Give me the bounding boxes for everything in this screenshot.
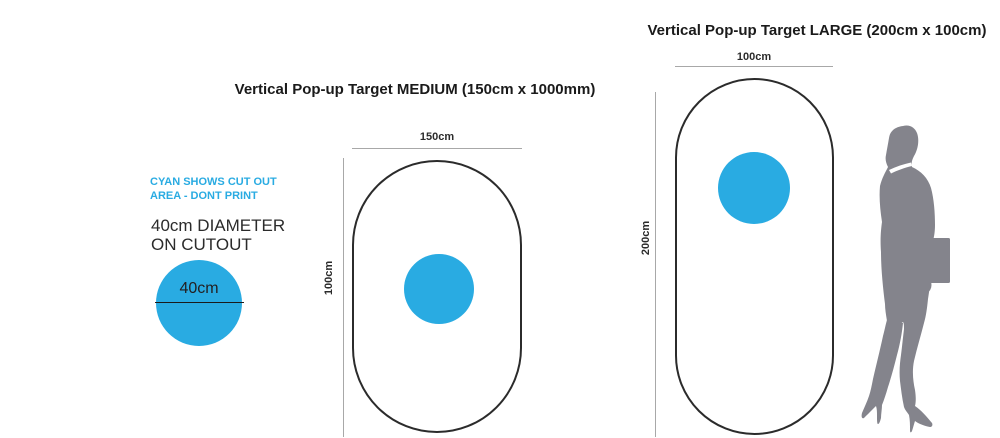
large-height-dim-line [655,92,656,437]
large-width-label: 100cm [704,51,804,63]
large-target-outline [675,78,834,435]
person-silhouette-icon [853,118,965,438]
silhouette-briefcase [927,238,950,283]
cutout-spec: 40cm DIAMETER ON CUTOUT [151,217,285,254]
medium-target-title: Vertical Pop-up Target MEDIUM (150cm x 1… [180,81,650,98]
cutout-spec-line2: ON CUTOUT [151,236,285,255]
silhouette-front-leg [862,317,903,424]
large-width-dim-line [675,66,833,67]
medium-height-label: 100cm [323,248,335,308]
cutout-diameter-line [155,302,244,303]
cutout-note: CYAN SHOWS CUT OUT AREA - DONT PRINT [150,175,277,203]
cutout-note-line1: CYAN SHOWS CUT OUT [150,175,277,189]
large-target-title: Vertical Pop-up Target LARGE (200cm x 10… [647,22,987,39]
silhouette-hand [923,278,932,292]
large-cutout-circle [718,152,790,224]
cutout-sample-circle [156,260,242,346]
diagram-canvas: Vertical Pop-up Target MEDIUM (150cm x 1… [0,0,1000,438]
medium-width-dim-line [352,148,522,149]
cutout-spec-line1: 40cm DIAMETER [151,217,285,236]
cutout-note-line2: AREA - DONT PRINT [150,189,277,203]
large-height-label: 200cm [640,208,652,268]
medium-height-dim-line [343,158,344,437]
cutout-sample-label: 40cm [156,280,242,298]
medium-width-label: 150cm [387,131,487,143]
medium-cutout-circle [404,254,474,324]
